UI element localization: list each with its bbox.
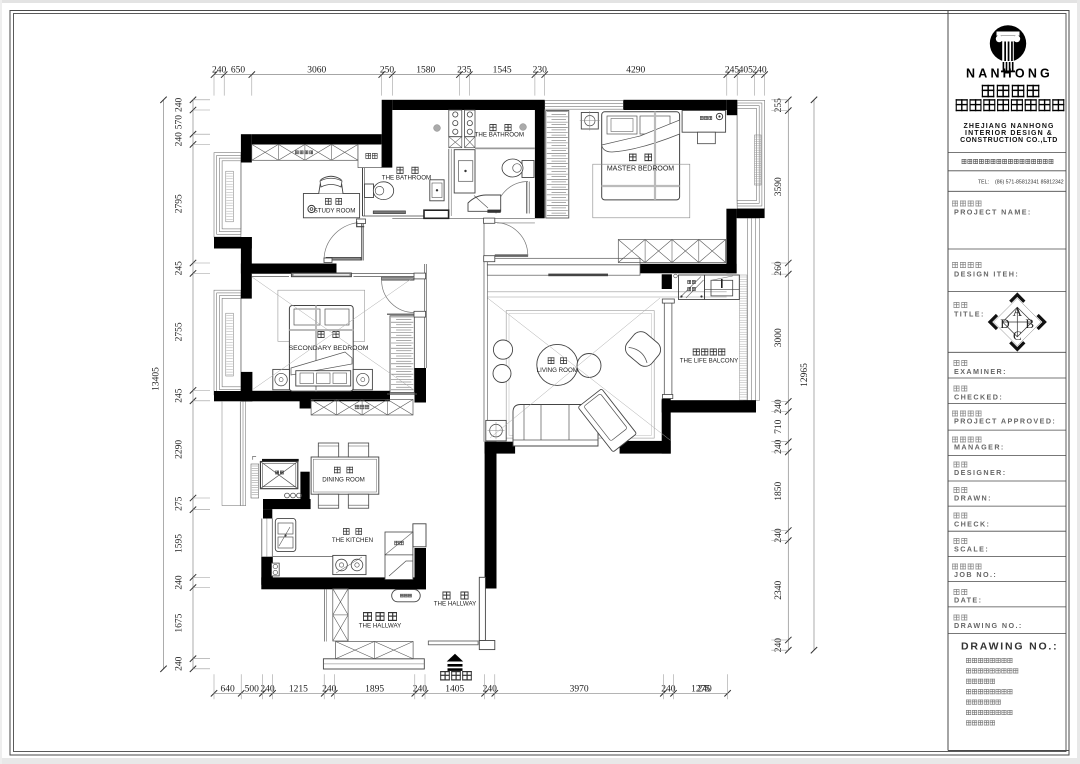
svg-text:1405: 1405 (445, 684, 464, 694)
svg-text:240: 240 (175, 656, 185, 671)
svg-text:PROJECT NAME:: PROJECT NAME: (954, 208, 1032, 217)
svg-text:CHECKED:: CHECKED: (954, 393, 1003, 402)
svg-text:2795: 2795 (175, 194, 185, 213)
svg-text:DRAWING NO.:: DRAWING NO.: (954, 621, 1023, 630)
svg-text:TEL:: TEL: (978, 180, 989, 186)
svg-text:3060: 3060 (307, 66, 326, 76)
svg-text:DATE:: DATE: (954, 596, 982, 605)
svg-text:DESIGNER:: DESIGNER: (954, 468, 1007, 477)
svg-text:A: A (1013, 304, 1023, 319)
svg-text:C: C (1013, 328, 1022, 343)
svg-text:1215: 1215 (289, 684, 308, 694)
svg-text:405: 405 (739, 66, 754, 76)
svg-text:3970: 3970 (570, 684, 589, 694)
svg-text:260: 260 (774, 261, 784, 276)
svg-text:240: 240 (175, 98, 185, 113)
svg-text:SECONDARY BEDROOM: SECONDARY BEDROOM (289, 345, 369, 352)
svg-text:NANHONG: NANHONG (966, 67, 1053, 81)
svg-text:D: D (1000, 316, 1009, 331)
svg-text:1595: 1595 (175, 534, 185, 553)
svg-text:1545: 1545 (493, 66, 512, 76)
svg-text:3000: 3000 (774, 328, 784, 347)
svg-text:570: 570 (175, 115, 185, 130)
svg-text:THE LIFE BALCONY: THE LIFE BALCONY (680, 358, 738, 365)
svg-text:1675: 1675 (175, 613, 185, 632)
svg-text:INTERIOR DESIGN &: INTERIOR DESIGN & (965, 130, 1053, 137)
svg-text:JOB NO.:: JOB NO.: (954, 570, 997, 579)
svg-text:DINING ROOM: DINING ROOM (322, 477, 365, 484)
svg-text:THE HALLWAY: THE HALLWAY (434, 601, 477, 608)
svg-text:MANAGER:: MANAGER: (954, 443, 1005, 452)
svg-text:THE KITCHEN: THE KITCHEN (332, 537, 373, 544)
svg-text:240: 240 (175, 575, 185, 590)
svg-text:245: 245 (175, 388, 185, 403)
svg-text:1850: 1850 (774, 481, 784, 500)
svg-text:SCALE:: SCALE: (954, 545, 989, 554)
svg-text:EXAMINER:: EXAMINER: (954, 367, 1007, 376)
svg-text:THE BATHROOM: THE BATHROOM (475, 132, 524, 139)
svg-text:1895: 1895 (365, 684, 384, 694)
svg-text:PROJECT APPROVED:: PROJECT APPROVED: (954, 417, 1056, 426)
svg-text:710: 710 (774, 419, 784, 434)
svg-text:640: 640 (220, 684, 235, 694)
svg-text:THE HALLWAY: THE HALLWAY (359, 623, 402, 630)
svg-text:240: 240 (697, 684, 712, 694)
svg-text:MASTER BEDROOM: MASTER BEDROOM (607, 166, 674, 173)
svg-text:275: 275 (175, 496, 185, 511)
svg-text:13405: 13405 (152, 367, 162, 391)
svg-text:2755: 2755 (175, 322, 185, 341)
svg-text:240: 240 (175, 132, 185, 147)
svg-text:CONSTRUCTION CO.,LTD: CONSTRUCTION CO.,LTD (960, 137, 1058, 144)
svg-text:THE BATHROOM: THE BATHROOM (382, 174, 431, 181)
svg-text:2290: 2290 (175, 440, 185, 459)
svg-text:(86) 571-85812341 85812342: (86) 571-85812341 85812342 (995, 180, 1064, 186)
svg-text:1580: 1580 (416, 66, 435, 76)
svg-text:B: B (1025, 316, 1034, 331)
svg-text:500: 500 (245, 684, 260, 694)
svg-text:CHECK:: CHECK: (954, 520, 990, 529)
svg-text:245: 245 (175, 261, 185, 276)
svg-text:4290: 4290 (626, 66, 645, 76)
svg-text:3590: 3590 (774, 177, 784, 196)
svg-text:STUDY ROOM: STUDY ROOM (314, 208, 356, 215)
svg-text:DRAWING NO.:: DRAWING NO.: (961, 641, 1058, 653)
svg-text:ZHEJIANG NANHONG: ZHEJIANG NANHONG (963, 123, 1054, 130)
svg-text:650: 650 (231, 66, 246, 76)
svg-text:DESIGN ITEH:: DESIGN ITEH: (954, 270, 1019, 279)
svg-text:2340: 2340 (774, 581, 784, 600)
svg-text:12965: 12965 (800, 363, 810, 387)
svg-text:DRAWN:: DRAWN: (954, 494, 992, 503)
svg-text:TITLE:: TITLE: (954, 310, 985, 319)
